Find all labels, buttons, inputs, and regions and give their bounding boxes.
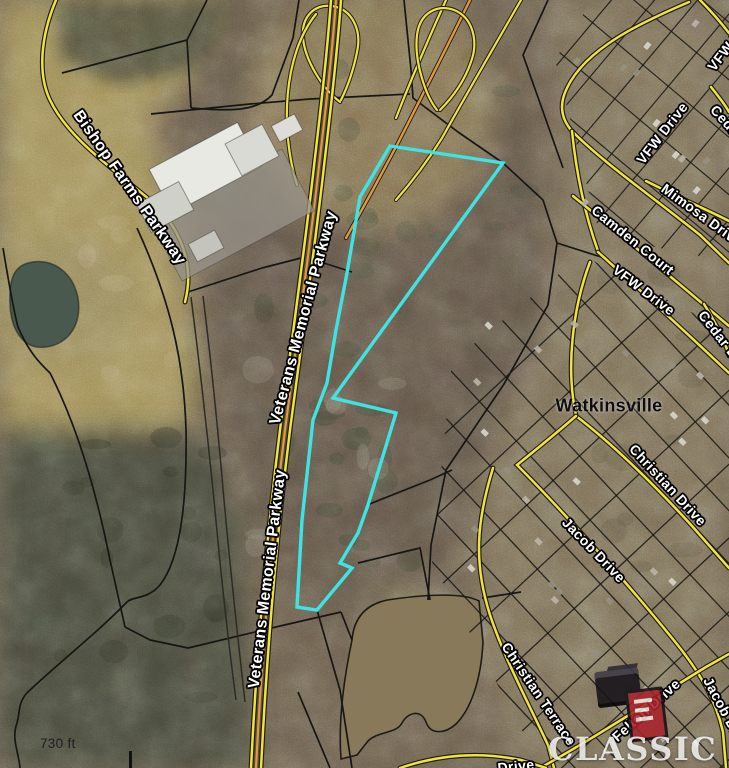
town-label: Watkinsville	[556, 396, 663, 417]
map-canvas	[0, 0, 729, 768]
watermark-text: CLASSIC MLS	[548, 730, 729, 768]
scale-label: 730 ft	[40, 736, 76, 751]
aerial-map: Bishop Farms ParkwayVeterans Memorial Pa…	[0, 0, 729, 768]
scale-tick	[129, 751, 132, 768]
